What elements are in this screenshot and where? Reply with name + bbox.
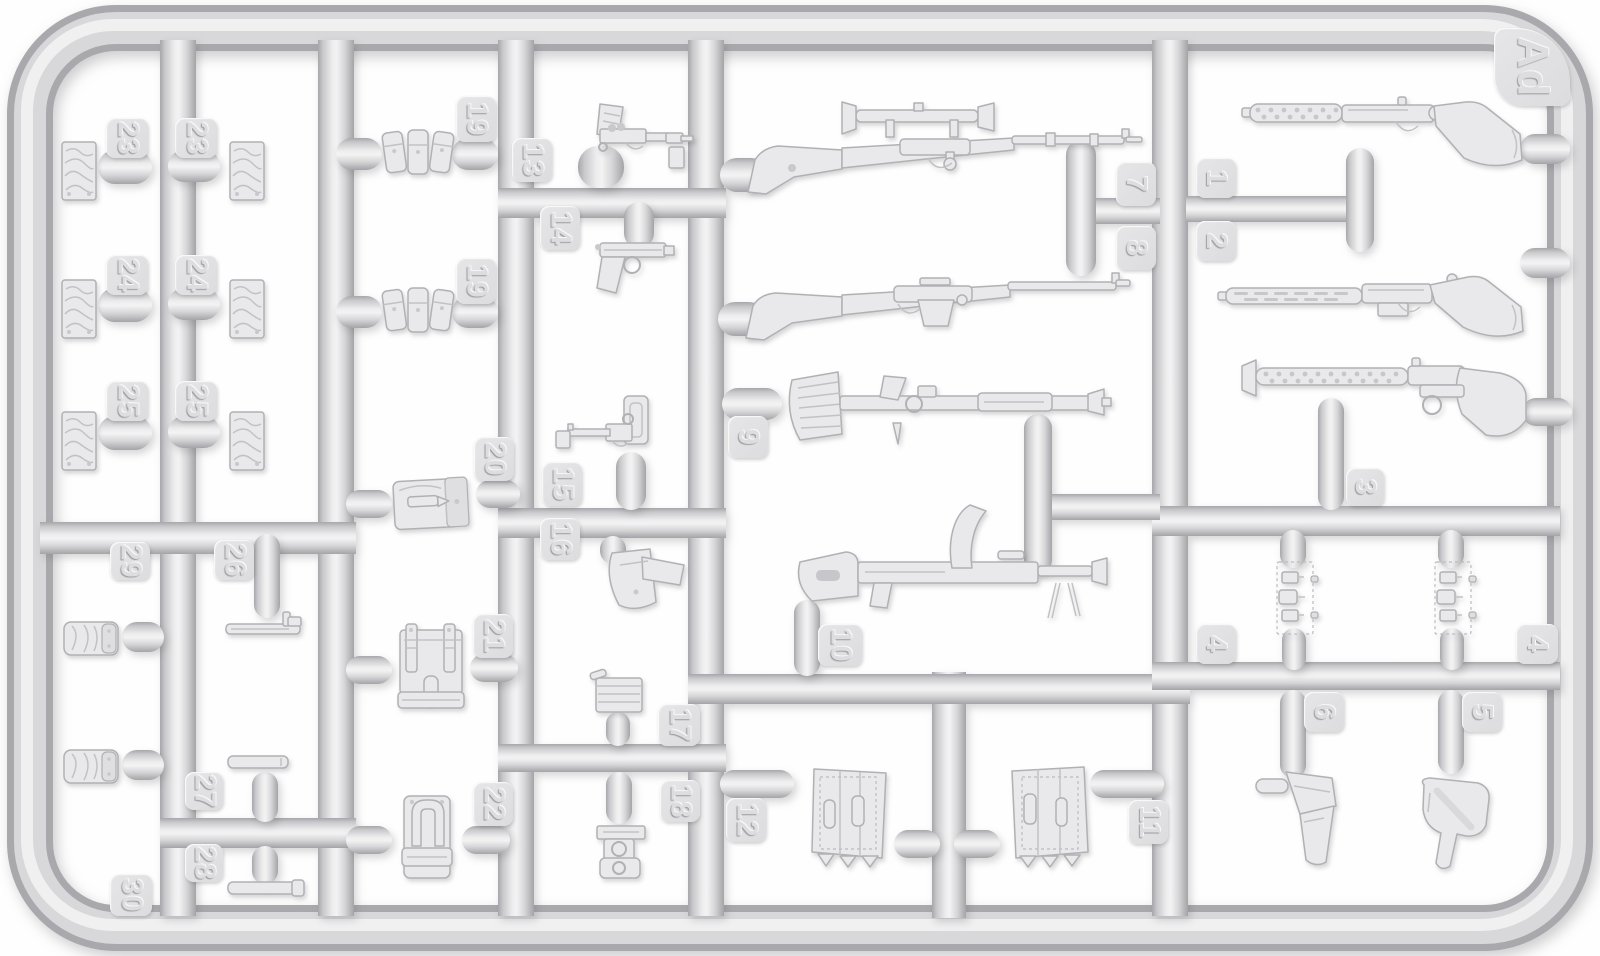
part-number-tab-26: 26 [214,540,254,580]
part-semiauto-rifle-8 [746,273,1130,340]
part-number-tab-13: 13 [512,138,552,182]
part-number-tab-1: 1 [1196,158,1236,198]
part-number-tab-3: 3 [1346,468,1384,506]
part-number-tab-27: 27 [185,772,223,810]
part-number-tab-28: 28 [185,844,223,882]
part-number-tab-12: 12 [726,798,766,842]
part-magazine-pouch-19a [382,130,455,174]
part-number-tab-21: 21 [473,614,513,658]
part-number-tab-6: 6 [1304,692,1344,732]
part-folded-cloth-24a [62,280,96,338]
sprue-photo: Ad 23 23 24 24 25 25 29 30 26 27 28 19 1… [0,0,1600,956]
part-ammo-bag-12 [812,769,886,867]
part-number-tab-19: 19 [456,96,496,142]
part-folded-cloth-25a [62,412,96,470]
part-number-tab-30: 30 [110,874,152,916]
part-submachine-gun-3 [1242,358,1526,436]
part-pistol-with-stock-15 [556,396,648,448]
part-magazine-pouch-19b [382,288,455,332]
part-number-tab-16: 16 [540,518,580,560]
part-number-tab-4: 4 [1196,624,1236,664]
part-ammo-pouch-20 [393,477,469,530]
part-number-tab-25: 25 [106,381,148,421]
part-holster-16 [609,549,684,608]
part-number-tab-10: 10 [818,624,862,666]
part-number-tab-11: 11 [1128,800,1168,844]
part-submachine-gun-1 [1242,97,1522,166]
part-holster-5 [1422,778,1489,868]
part-folded-cloth-24b [230,280,264,338]
part-magazine-pouch-plate-4a [1277,562,1318,634]
part-number-tab-7: 7 [1116,162,1156,206]
part-ammo-box-17 [589,669,642,712]
part-scoped-rifle-7 [748,102,1142,194]
part-number-tab-20: 20 [474,437,514,481]
part-bar-26 [226,612,301,634]
part-number-tab-18: 18 [660,780,700,822]
part-pistol-14 [595,243,674,293]
part-light-machine-gun-10 [799,505,1108,618]
part-number-tab-24: 24 [106,255,148,295]
part-folded-cloth-23a [62,142,96,200]
part-automatic-rifle-9 [789,372,1111,444]
part-bar-27 [228,756,288,768]
part-number-tab-2: 2 [1196,221,1236,261]
part-submachine-gun-2 [1218,274,1523,336]
part-rolled-bundle-30 [64,750,118,783]
part-number-tab-22: 22 [473,782,513,826]
part-number-tab-14: 14 [540,206,580,250]
part-pack-pouch-21 [398,624,464,708]
part-holster-6 [1256,772,1336,865]
part-number-tab-4: 4 [1516,624,1558,664]
part-number-tab-17: 17 [658,704,700,746]
part-number-tab-15: 15 [542,462,582,506]
part-number-tab-23: 23 [175,118,217,158]
part-number-tab-29: 29 [110,542,150,580]
part-pistol-13 [597,104,693,168]
part-number-tab-24: 24 [175,255,217,295]
part-number-tab-25: 25 [175,381,217,421]
part-number-tab-19: 19 [456,258,496,304]
part-folded-cloth-25b [230,412,264,470]
part-optical-sight-18 [597,826,645,878]
part-number-tab-9: 9 [728,416,768,458]
part-number-tab-5: 5 [1462,692,1502,732]
part-number-tab-23: 23 [106,118,148,158]
part-magazine-pouch-plate-4b [1435,562,1476,634]
part-equipment-pouch-22 [402,796,452,878]
part-ammo-bag-11 [1012,767,1088,867]
part-number-tab-8: 8 [1116,226,1156,270]
part-folded-cloth-23b [230,142,264,200]
part-rolled-bundle-29 [64,622,118,655]
part-bar-28 [228,880,304,896]
